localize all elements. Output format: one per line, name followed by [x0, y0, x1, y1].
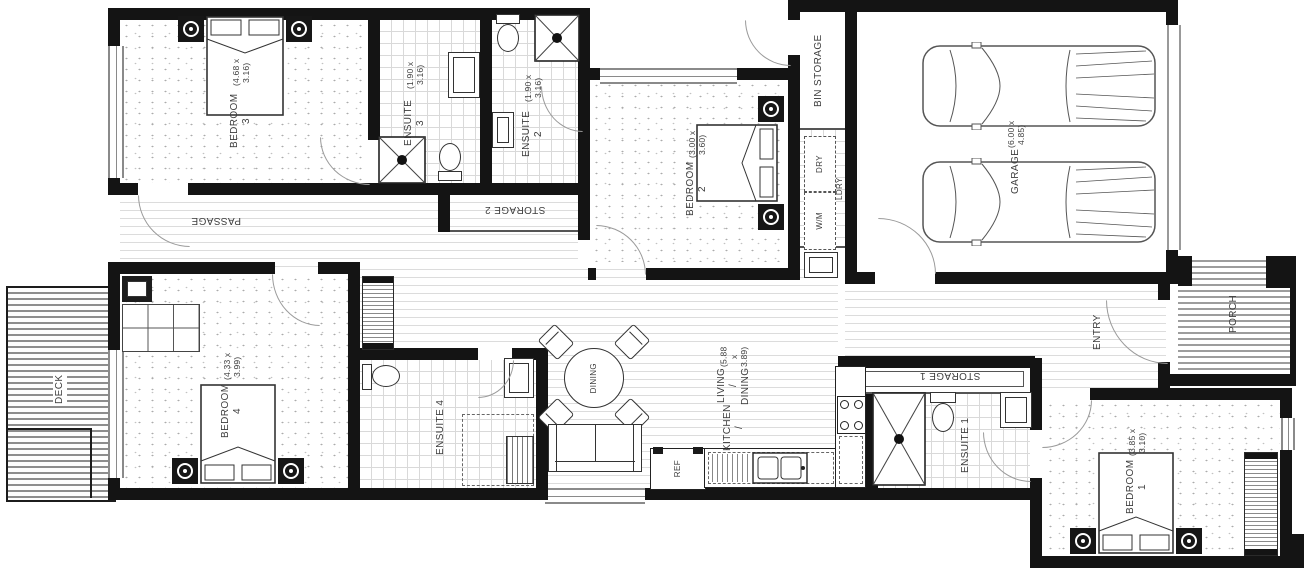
bedside-table-icon [178, 16, 204, 42]
door-arc-bin-storage [745, 20, 791, 66]
room-label-storage-2: STORAGE 2 [462, 198, 568, 220]
wardrobe-icon [362, 276, 394, 350]
overhead-cupboard-line [839, 436, 863, 484]
laundry-divider [800, 128, 845, 130]
room-label-laundry: LDRY [834, 150, 846, 228]
wall [1090, 388, 1292, 400]
bedside-table-icon [758, 96, 784, 122]
wardrobe-icon [1244, 452, 1278, 556]
wall [1280, 400, 1292, 418]
wall [1178, 256, 1192, 286]
car-icon [920, 158, 1158, 246]
wall [368, 20, 380, 140]
window-bedroom-3 [108, 46, 124, 178]
wall [438, 195, 450, 232]
toilet-icon [436, 143, 464, 183]
wall [590, 68, 600, 80]
wall [348, 262, 360, 500]
room-label-passage: PASSAGE [166, 208, 266, 232]
room-label-ensuite-2: ENSUITE 2 (1.90 x 3.16) [518, 66, 548, 158]
window-bedroom-2 [600, 68, 737, 84]
sofa-icon [548, 424, 642, 472]
corner-block [1288, 534, 1304, 568]
wall [108, 8, 120, 46]
bedside-table-icon [278, 458, 304, 484]
shower-icon [872, 392, 926, 486]
wall [588, 268, 596, 280]
bedside-table-icon [758, 204, 784, 230]
dryer-icon: DRY [804, 136, 836, 192]
room-label-bedroom-1: BEDROOM 1 (3.85 x 3.10) [1120, 426, 1154, 514]
deck-step-line [6, 428, 92, 498]
toilet-icon [928, 392, 958, 434]
wall [188, 183, 590, 195]
washing-machine-icon: W/M [804, 192, 836, 250]
wall [1166, 250, 1178, 284]
room-label-ensuite-1: ENSUITE 1 [956, 406, 976, 484]
storage-2-front-line [450, 230, 578, 232]
room-label-kitchen-living: KITCHEN / LIVING / DINING (5.88 x 3.89) [712, 348, 756, 450]
wall [108, 183, 138, 195]
refrigerator-icon: REF [650, 448, 706, 490]
room-label-ensuite-4: ENSUITE 4 [430, 388, 452, 466]
wall [1032, 556, 1292, 568]
room-label-deck: DECK [46, 354, 74, 424]
wall [1290, 256, 1296, 376]
room-label-bedroom-2: BEDROOM 2 (3.00 x 3.60) [680, 128, 714, 216]
room-label-garage: GARAGE (6.00 x 4.85) [998, 120, 1034, 194]
room-label-bedroom-4: BEDROOM 4 (4.33 x 3.99) [214, 350, 250, 438]
wall [1166, 0, 1178, 25]
floor-plan: BEDROOM 3 (4.68 x 3.16) ENSUITE 3 (1.90 … [0, 0, 1304, 572]
shower-icon [534, 14, 580, 62]
bedside-table-icon [286, 16, 312, 42]
wall [108, 488, 545, 500]
round-dining-table-icon: DINING [564, 348, 624, 408]
wall [646, 268, 800, 280]
room-label-bin-storage: BIN STORAGE [810, 20, 828, 122]
vanity-basin-icon [492, 112, 514, 148]
room-label-bedroom-3: BEDROOM 3 (4.68 x 3.16) [224, 52, 258, 148]
shelving-icon [506, 436, 534, 484]
wall [788, 12, 800, 20]
wall [845, 12, 857, 272]
laundry-tub-icon [804, 252, 838, 278]
vanity-basin-icon [448, 52, 480, 98]
car-icon [920, 42, 1158, 130]
bedside-table-icon [1070, 528, 1096, 554]
wall [108, 262, 120, 350]
wall [108, 478, 120, 500]
wall [1170, 374, 1296, 386]
bedside-table-icon [1176, 528, 1202, 554]
room-label-ensuite-3: ENSUITE 3 (1.90 x 3.16) [400, 52, 430, 148]
wall [108, 262, 275, 274]
window-bedroom-1 [1281, 418, 1295, 450]
window-living [545, 488, 645, 504]
garage-door [1167, 25, 1181, 250]
wall [788, 0, 1178, 12]
wall [935, 272, 1178, 284]
wall [1158, 284, 1170, 300]
cabinet-icon [122, 304, 200, 352]
wall [788, 55, 800, 280]
cooktop-icon [837, 396, 866, 434]
room-label-storage-1: STORAGE 1 [898, 364, 1002, 386]
wall [1158, 362, 1170, 388]
wall [845, 272, 875, 284]
sliding-door-deck [108, 350, 124, 478]
sink-drainer [712, 454, 748, 482]
corner-basin-icon [122, 276, 152, 302]
toilet-icon [494, 14, 522, 54]
wall [480, 20, 492, 183]
room-label-entry: ENTRY [1086, 302, 1110, 362]
vanity-basin-icon [1000, 392, 1032, 428]
bedside-table-icon [172, 458, 198, 484]
room-label-dining: DINING [589, 363, 599, 393]
room-label-porch: PORCH [1222, 280, 1246, 348]
kitchen-sink-icon [752, 452, 808, 484]
toilet-icon [362, 362, 404, 392]
